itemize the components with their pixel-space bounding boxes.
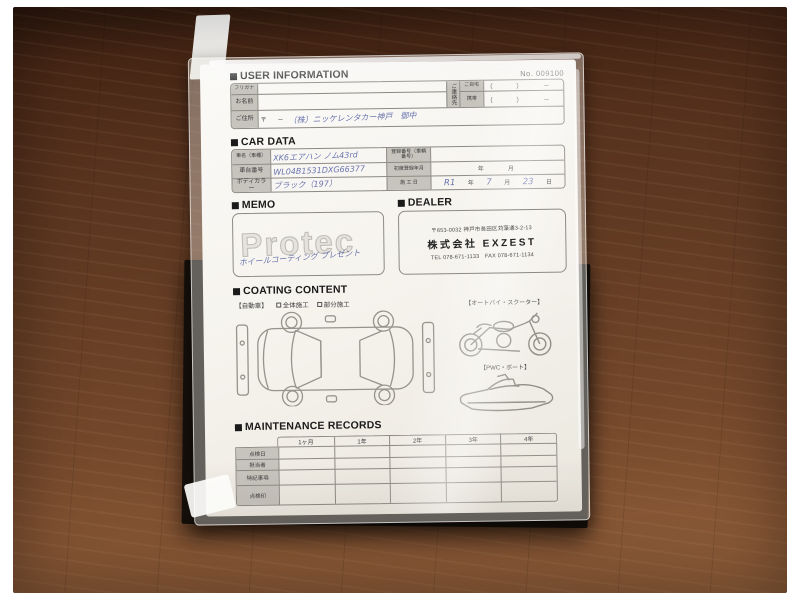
column-header: 4年 [500, 434, 556, 444]
table-cell [279, 484, 335, 505]
coating-record-form: USER INFORMATION No. 009100 フリガナ ご連絡先 ご自… [200, 59, 582, 516]
table-cell [445, 455, 501, 467]
column-header: 2年 [389, 435, 445, 445]
dealer-section: DEALER 〒653-0032 神戸市長田区苅藻通3-2-13 株式会社 EX… [398, 195, 567, 275]
body-color-field: ブラック（197） [270, 176, 386, 192]
pwc-jetski-diagram [455, 372, 556, 413]
column-header: 1ヶ月 [278, 437, 334, 447]
car-coating-area: 【自動車】 全体施工 部分施工 [233, 295, 443, 416]
maintenance-records-table: 1ヶ月 1年 2年 3年 4年 点検日 担当者 特記事項 点検印 [235, 433, 558, 506]
table-cell [334, 446, 390, 458]
coating-content-title-text: COATING CONTENT [243, 284, 347, 297]
month-unit: 月 [504, 177, 510, 186]
year-unit: 年 [468, 178, 474, 187]
install-date-field: R1 年 7 月 23 日 [430, 174, 564, 190]
install-date-label: 施 工 日 [386, 175, 430, 190]
car-data-title: CAR DATA [231, 135, 296, 148]
table-cell [390, 482, 446, 503]
table-cell [334, 457, 390, 469]
other-vehicles-area: 【オートバイ・スクーター】 [441, 294, 569, 414]
coating-content-title: COATING CONTENT [233, 284, 347, 298]
partial-coating-option: 部分施工 [317, 299, 350, 309]
dealer-company: 株式会社 EXZEST [428, 233, 538, 251]
table-cell [278, 458, 334, 470]
row-label: 担当者 [236, 459, 278, 471]
row-label: 点検日 [236, 448, 278, 460]
table-cell [278, 447, 334, 459]
car-data-title-text: CAR DATA [241, 135, 296, 148]
address-field: 〒 － （株）ニッケレンタカー神戸 御中 [257, 106, 563, 128]
dealer-box: 〒653-0032 神戸市長田区苅藻通3-2-13 株式会社 EXZEST TE… [398, 209, 567, 275]
postal-blank: － [272, 114, 284, 123]
home-phone-label: ご自宅 [459, 81, 483, 91]
name-label: お名前 [231, 94, 257, 110]
form-number: No. 009100 [520, 69, 564, 79]
section-marker-icon [233, 288, 240, 295]
car-name-label: 車名（車種） [232, 150, 270, 165]
coating-content-body: 【自動車】 全体施工 部分施工 [233, 294, 569, 417]
user-information-title: USER INFORMATION [230, 69, 349, 83]
motorcycle-label: 【オートバイ・スクーター】 [465, 297, 543, 307]
table-cell [501, 455, 557, 467]
table-cell [445, 444, 501, 456]
table-cell [445, 466, 501, 482]
dealer-stamp: 〒653-0032 神戸市長田区苅藻通3-2-13 株式会社 EXZEST TE… [427, 223, 537, 261]
full-coating-label: 全体施工 [283, 299, 309, 309]
postal-mark: 〒 [261, 115, 267, 124]
user-information-title-text: USER INFORMATION [240, 69, 349, 83]
body-color-handwritten: ブラック（197） [273, 178, 337, 192]
section-marker-icon [230, 73, 237, 80]
table-cell [501, 444, 557, 456]
row-label: 特記事項 [237, 470, 279, 486]
table-cell [334, 468, 390, 484]
dealer-title: DEALER [398, 195, 566, 209]
memo-title-text: MEMO [242, 199, 276, 211]
address-label: ご住所 [232, 110, 258, 128]
section-marker-icon [398, 199, 405, 206]
full-coating-option: 全体施工 [276, 299, 309, 309]
table-cell [446, 481, 502, 502]
partial-coating-label: 部分施工 [324, 299, 350, 309]
install-date-day-handwritten: 23 [523, 177, 534, 187]
table-cell [279, 469, 335, 485]
car-top-view-diagram [233, 308, 437, 407]
checkbox-icon [276, 302, 281, 307]
install-date-era-handwritten: R1 [444, 178, 455, 188]
checkbox-icon [317, 301, 322, 306]
chassis-label: 車台番号 [232, 164, 270, 179]
table-cell [390, 467, 446, 483]
install-date-month-handwritten: 7 [486, 177, 492, 187]
table-cell [501, 481, 557, 502]
car-name-handwritten: XK6エアハン ノム43rd [273, 149, 358, 163]
column-header: 1年 [334, 436, 390, 446]
table-cell [501, 466, 557, 482]
memo-box: ホイールコーティング プレゼント [232, 211, 385, 277]
maintenance-body: 点検日 担当者 特記事項 点検印 [235, 443, 558, 506]
car-data-table: 車名（車種） XK6エアハン ノム43rd 登録番号（車輌番号） 車台番号 WL… [231, 145, 566, 194]
memo-section: MEMO ホイールコーティング プレゼント [232, 197, 385, 277]
section-marker-icon [232, 202, 239, 209]
day-unit: 日 [546, 177, 552, 186]
dealer-phone: TEL 078-671-1133 FAX 078-671-1134 [431, 250, 534, 261]
mobile-phone-field: （ ） － [483, 90, 563, 107]
user-information-table: フリガナ ご連絡先 ご自宅 （ ） － お名前 携帯 （ ） － ご住所 〒 －… [230, 79, 565, 130]
dealer-title-text: DEALER [408, 196, 453, 209]
registration-label: 登録番号（車輌番号） [386, 147, 430, 162]
first-registration-label: 初度登録年月 [386, 161, 430, 176]
wood-table-background: USER INFORMATION No. 009100 フリガナ ご連絡先 ご自… [13, 7, 787, 593]
table-cell [390, 456, 446, 468]
mobile-phone-label: 携帯 [459, 91, 483, 107]
section-marker-icon [235, 424, 242, 431]
address-handwritten: （株）ニッケレンタカー神戸 御中 [288, 110, 416, 126]
memo-dealer-row: Protec MEMO ホイールコーティング プレゼント DEALER 〒653… [232, 195, 567, 278]
maintenance-records-title: MAINTENANCE RECORDS [235, 419, 382, 433]
maintenance-records-header: MAINTENANCE RECORDS [235, 416, 569, 434]
row-label: 点検印 [237, 485, 279, 506]
maintenance-records-title-text: MAINTENANCE RECORDS [245, 419, 382, 433]
table-cell [389, 445, 445, 457]
motorcycle-diagram [451, 307, 558, 358]
vehicle-label: 【自動車】 [235, 300, 268, 310]
memo-handwritten: ホイールコーティング プレゼント [238, 247, 360, 268]
table-cell [334, 483, 390, 504]
furigana-label: フリガナ [231, 84, 257, 94]
memo-title: MEMO [232, 197, 384, 211]
section-marker-icon [231, 139, 238, 146]
body-color-label: ボディカラー [232, 178, 270, 193]
contact-label: ご連絡先 [446, 81, 459, 107]
pwc-label: 【PWC・ボート】 [480, 362, 530, 372]
dealer-address: 〒653-0032 神戸市長田区苅藻通3-2-13 [431, 223, 532, 234]
chassis-handwritten: WL04B1531DXG66377 [273, 164, 365, 177]
column-header: 3年 [445, 434, 501, 444]
